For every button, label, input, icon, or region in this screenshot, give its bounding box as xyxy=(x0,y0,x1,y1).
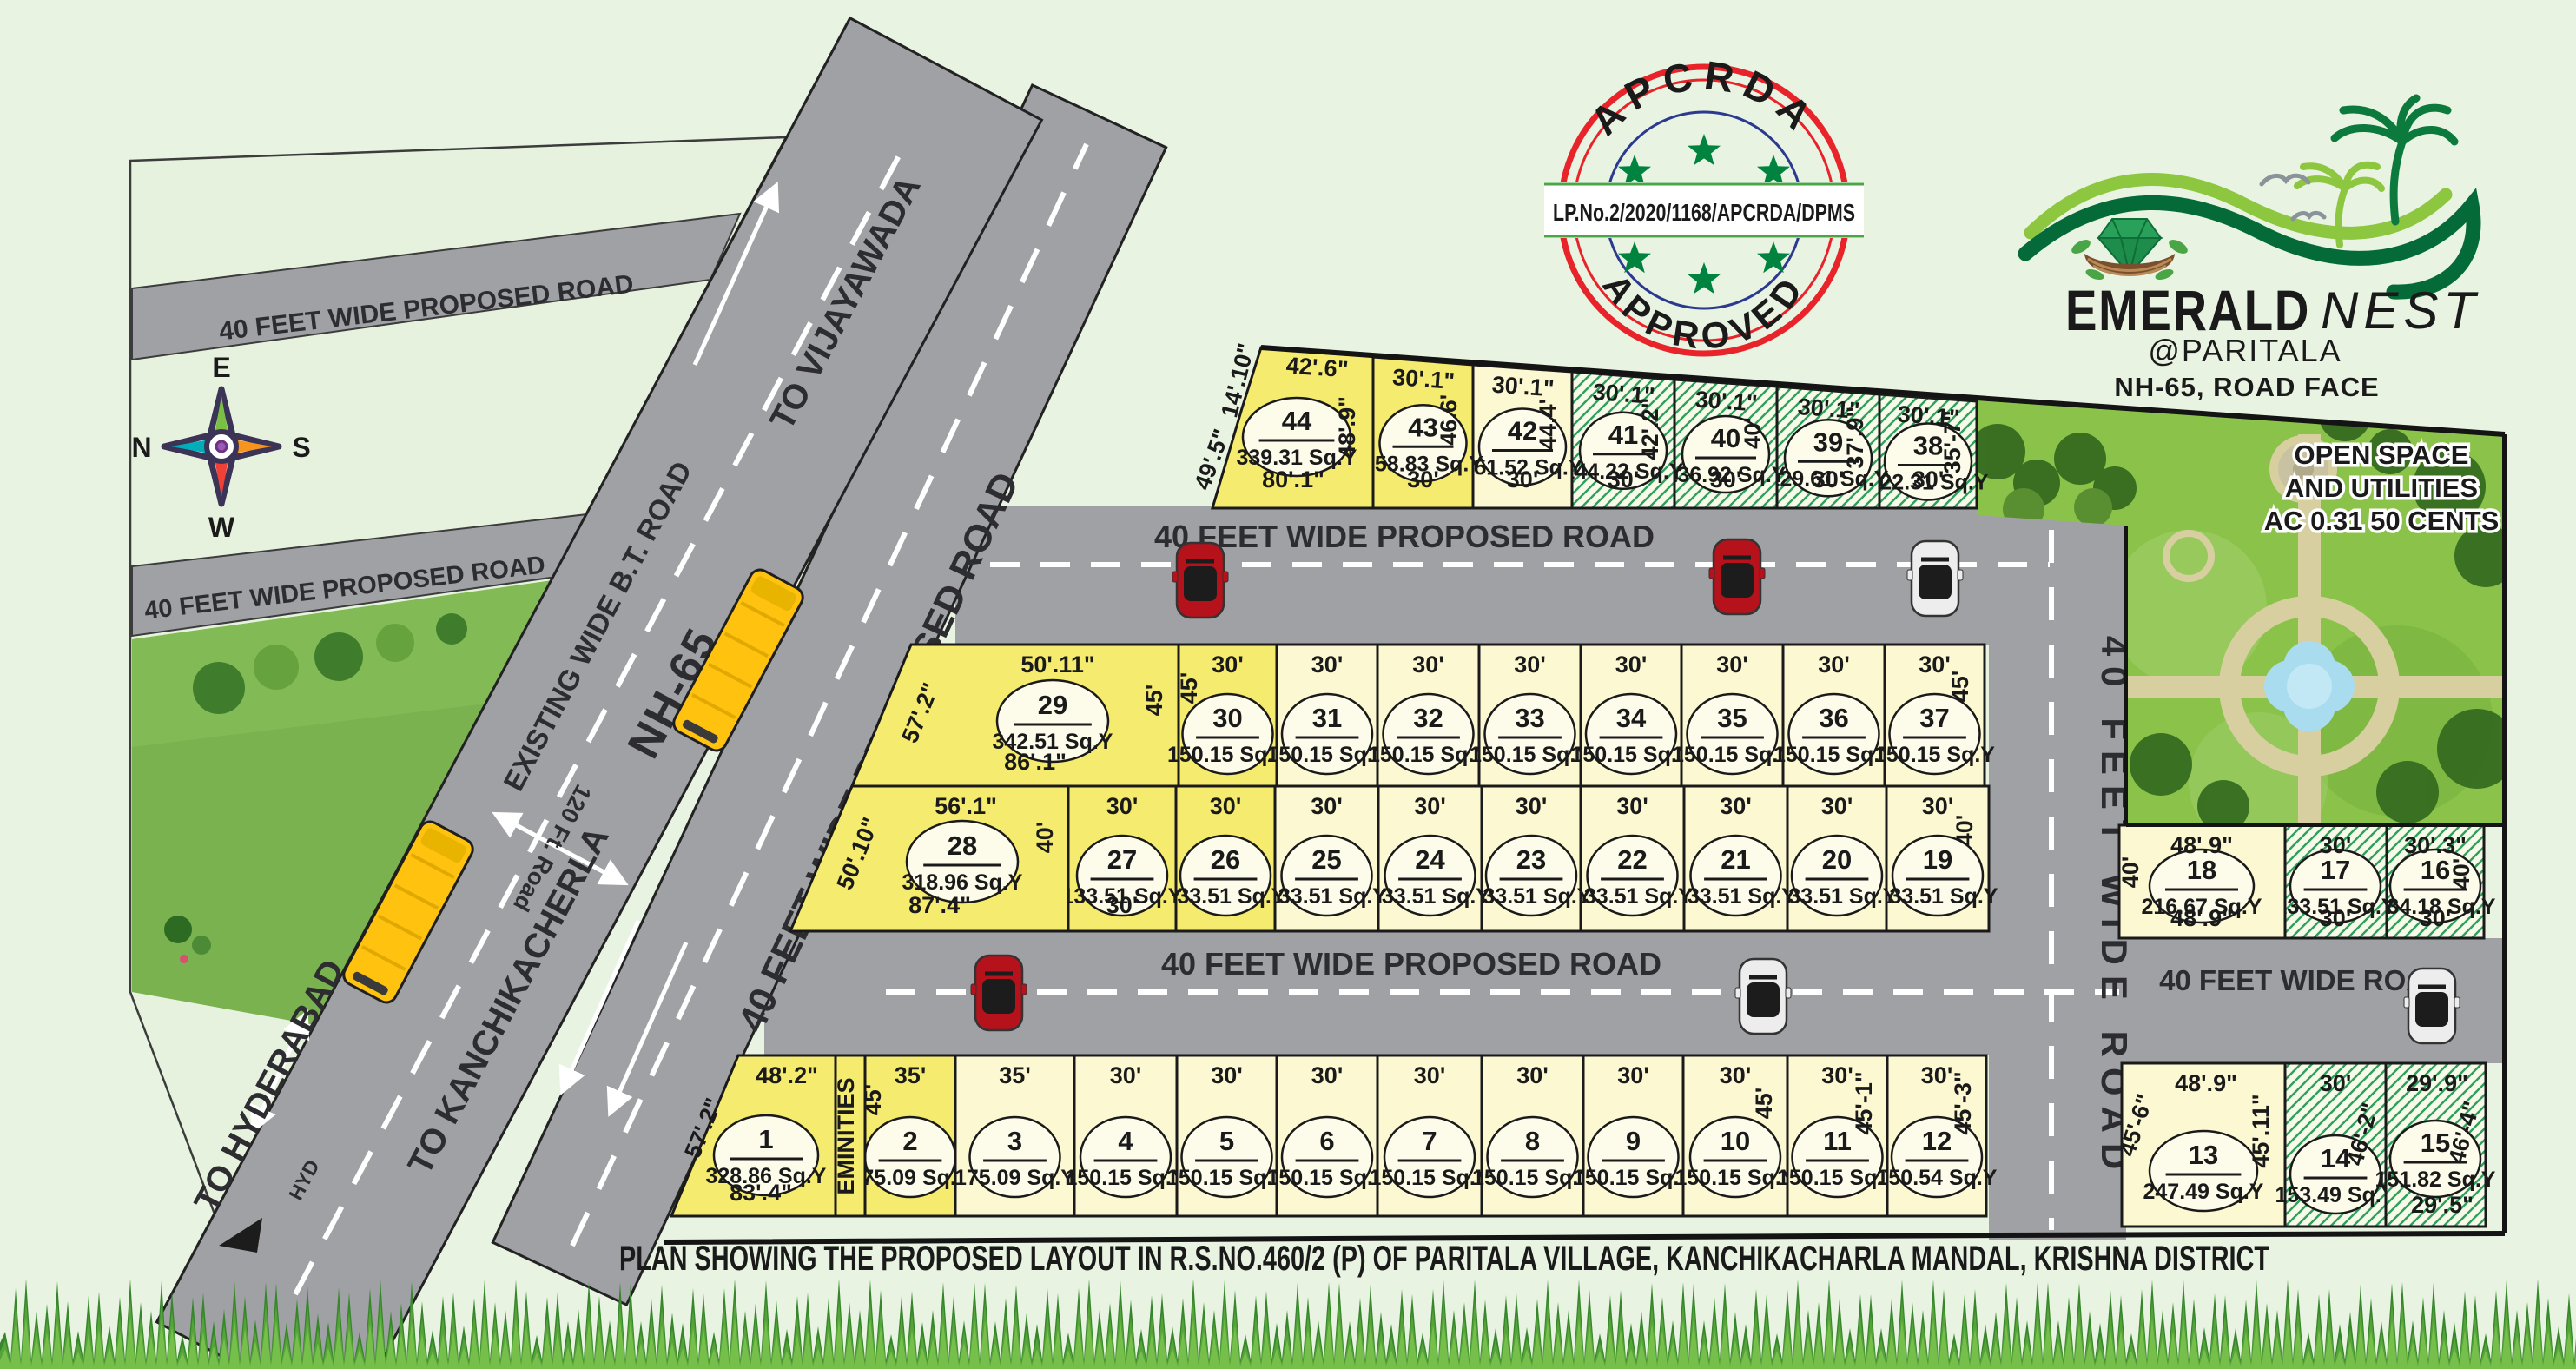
plot-23: 23133.51 Sq.Y30' xyxy=(1471,786,1592,931)
plot-42-dim-top: 30'.1" xyxy=(1491,372,1556,402)
plot-28-dim-top: 56'.1" xyxy=(935,793,997,819)
plot-43-dim-top: 30'.1" xyxy=(1391,364,1456,394)
plot-29-number: 29 xyxy=(1038,690,1067,720)
plot-24-area: 133.51 Sq.Y xyxy=(1370,884,1490,909)
plot-15-dim-top: 29'.9" xyxy=(2406,1070,2468,1096)
car-icon xyxy=(1172,543,1228,618)
plot-34-dim-top: 30' xyxy=(1615,651,1647,678)
plot-28-area: 318.96 Sq.Y xyxy=(902,870,1023,895)
plot-40-dim-top: 30'.1" xyxy=(1694,387,1759,417)
logo-tagline: NH-65, ROAD FACE xyxy=(2114,372,2379,402)
plot-21-area: 133.51 Sq.Y xyxy=(1675,884,1796,909)
plot-17-dim-bottom: 30' xyxy=(2320,905,2351,931)
plot-12-dim-right: 45'-3" xyxy=(1950,1071,1976,1134)
eminities-label: EMINITIES xyxy=(833,1077,859,1194)
logo-location: @PARITALA xyxy=(2148,333,2342,368)
plot-22-number: 22 xyxy=(1617,844,1647,875)
plot-24-number: 24 xyxy=(1415,844,1445,875)
plot-19-dim-top: 30' xyxy=(1922,793,1953,819)
plot-40: 40136.92 Sq.Y30'.1"30'40' xyxy=(1666,380,1787,508)
plot-29-dim-top: 50'.11" xyxy=(1020,651,1094,678)
plot-10-number: 10 xyxy=(1721,1126,1750,1156)
plot-15: 15151.82 Sq.Y29'.9"29'.5"46'-4" xyxy=(2375,1063,2496,1227)
plot-25: 25133.51 Sq.Y30' xyxy=(1266,786,1387,931)
plot-9-number: 9 xyxy=(1626,1126,1641,1156)
plot-37-number: 37 xyxy=(1919,703,1949,733)
plot-28-dim-bottom: 87'.4" xyxy=(908,892,971,918)
plot-31-number: 31 xyxy=(1312,703,1342,733)
road1-label: 40 FEET WIDE PROPOSED ROAD xyxy=(1154,519,1655,554)
plot-7: 7150.15 Sq.Y30' xyxy=(1370,1055,1490,1216)
compass-label-w: W xyxy=(208,512,235,543)
plot-4-number: 4 xyxy=(1118,1126,1133,1156)
plot-16-dim-top: 30'.3" xyxy=(2404,832,2467,858)
plot-43-dim-right: 46.6' xyxy=(1436,394,1462,446)
plot-12-area: 150.54 Sq.Y xyxy=(1877,1166,1998,1190)
plot-27-dim-top: 30' xyxy=(1106,793,1138,819)
tree-icon xyxy=(314,632,363,681)
plot-35-number: 35 xyxy=(1717,703,1747,733)
plot-43-number: 43 xyxy=(1408,412,1437,442)
tree-icon xyxy=(254,645,299,690)
eminities-strip: EMINITIES xyxy=(833,1055,865,1216)
plot-34-number: 34 xyxy=(1616,703,1647,733)
plot-41-dim-right: 42'.2" xyxy=(1637,398,1663,460)
plot-40-dim-right: 40' xyxy=(1740,417,1766,448)
plot-11: 11150.15 Sq.Y30'45'-1" xyxy=(1777,1055,1898,1216)
plot-12-number: 12 xyxy=(1922,1126,1952,1156)
plot-30-number: 30 xyxy=(1212,703,1242,733)
plot-41-number: 41 xyxy=(1608,420,1638,450)
plot-24-dim-top: 30' xyxy=(1414,793,1445,819)
plot-41: 41144.22 Sq.Y30'.1"30'42'.2" xyxy=(1563,372,1684,508)
plot-20-number: 20 xyxy=(1822,844,1852,875)
plot-13: 13247.49 Sq.Y48'.9"45'-6"45'.11" xyxy=(2114,1063,2285,1227)
open-space-line3: AC 0.31 50 CENTS xyxy=(2264,506,2500,536)
compass-dot xyxy=(216,441,227,452)
plot-26: 26133.51 Sq.Y30' xyxy=(1166,786,1286,931)
plot-5: 5150.15 Sq.Y30' xyxy=(1166,1055,1287,1216)
plot-23-number: 23 xyxy=(1516,844,1546,875)
plot-18: 18216.67 Sq.Y48'.9"48'.9"40' xyxy=(2117,825,2285,938)
plot-5-dim-top: 30' xyxy=(1211,1062,1242,1088)
plot-16-dim-right: 40' xyxy=(2448,858,2474,890)
plot-5-number: 5 xyxy=(1219,1126,1234,1156)
road3-label: 40 FEET WIDE ROAD xyxy=(2159,964,2447,996)
plot-19-number: 19 xyxy=(1923,844,1952,875)
plot-29: 29342.51 Sq.Y50'.11"86'.1"57'.2"45' xyxy=(852,645,1179,786)
plot-27: 27133.51 Sq.Y30'30' xyxy=(1062,786,1183,931)
plot-26-number: 26 xyxy=(1211,844,1240,875)
plot-23-dim-top: 30' xyxy=(1516,793,1547,819)
plot-18-dim-left: 40' xyxy=(2117,856,2143,888)
plot-7-number: 7 xyxy=(1422,1126,1437,1156)
plot-8: 8150.15 Sq.Y30' xyxy=(1472,1055,1593,1216)
plot-13-number: 13 xyxy=(2189,1140,2218,1170)
plot-38-dim-right: 35'-7" xyxy=(1939,410,1965,473)
plot-16-dim-bottom: 30' xyxy=(2420,905,2451,931)
plot-26-dim-top: 30' xyxy=(1210,793,1241,819)
plot-41-dim-bottom: 30' xyxy=(1608,466,1639,493)
plot-15-area: 151.82 Sq.Y xyxy=(2375,1167,2496,1192)
plot-17-dim-top: 30' xyxy=(2320,832,2351,858)
plot-43-dim-bottom: 30' xyxy=(1407,466,1438,493)
compass-label-s: S xyxy=(292,432,310,463)
plot-17: 17133.51 Sq.Y30'30' xyxy=(2275,825,2396,938)
plot-43: 43158.83 Sq.Y30'.1"30'46.6' xyxy=(1363,357,1483,508)
plot-29-dim-right: 45' xyxy=(1141,684,1167,716)
plot-16-number: 16 xyxy=(2421,855,2450,885)
plot-2-number: 2 xyxy=(902,1126,917,1156)
car-icon xyxy=(1907,541,1963,616)
plot-18-dim-bottom: 48'.9" xyxy=(2170,905,2233,931)
plot-1-number: 1 xyxy=(758,1124,773,1154)
plot-17-number: 17 xyxy=(2321,855,2350,885)
plot-30-dim-left: 45' xyxy=(1176,672,1202,704)
plot-40-number: 40 xyxy=(1711,423,1740,453)
plot-44-dim-bottom: 80'.1" xyxy=(1262,466,1324,493)
plot-39-dim-bottom: 30' xyxy=(1813,466,1844,493)
plot-10-dim-top: 30' xyxy=(1720,1062,1751,1088)
plot-6-number: 6 xyxy=(1319,1126,1334,1156)
layout-plan: 40 FEET WIDE PROPOSED ROAD 40 FEET WIDE … xyxy=(0,0,2576,1369)
plot-3-area: 175.09 Sq.Y xyxy=(954,1166,1075,1190)
plot-11-dim-right: 45'-1" xyxy=(1851,1071,1877,1134)
plot-42-number: 42 xyxy=(1508,416,1537,446)
plot-19-dim-right: 40' xyxy=(1952,815,1978,846)
plot-37-dim-top: 30' xyxy=(1919,651,1950,678)
compass-label-e: E xyxy=(212,352,230,383)
plot-28-number: 28 xyxy=(948,830,977,861)
plot-32-dim-top: 30' xyxy=(1412,651,1443,678)
plot-21-number: 21 xyxy=(1721,844,1750,875)
plot-44-dim-right: 48'.9" xyxy=(1334,396,1360,459)
plot-28-dim-right: 40' xyxy=(1032,822,1058,853)
plot-22-dim-top: 30' xyxy=(1616,793,1648,819)
plot-2-area: 175.09 Sq.Y xyxy=(850,1166,971,1190)
plot-37-area: 150.15 Sq.Y xyxy=(1874,743,1995,767)
open-space-line1: OPEN SPACE xyxy=(2295,440,2469,470)
plot-38: 38122.31 Sq.Y30'.1"30'35'-7" xyxy=(1868,394,1989,508)
plot-10-dim-right: 45' xyxy=(1751,1088,1777,1119)
plot-9-dim-top: 30' xyxy=(1617,1062,1648,1088)
plan-title: PLAN SHOWING THE PROPOSED LAYOUT IN R.S.… xyxy=(619,1240,2269,1278)
plot-9: 9150.15 Sq.Y30' xyxy=(1573,1055,1694,1216)
plot-18-number: 18 xyxy=(2187,855,2216,885)
plot-27-dim-bottom: 30' xyxy=(1106,892,1138,918)
plot-13-dim-top: 48'.9" xyxy=(2175,1070,2237,1096)
plot-25-number: 25 xyxy=(1311,844,1341,875)
car-icon xyxy=(1709,539,1765,614)
plot-21: 21133.51 Sq.Y30' xyxy=(1675,786,1796,931)
open-space-line2: AND UTILITIES xyxy=(2285,473,2478,503)
plot-37: 37150.15 Sq.Y30'45' xyxy=(1874,645,1995,786)
plot-2-dim-top: 35' xyxy=(895,1062,926,1088)
road2-label: 40 FEET WIDE PROPOSED ROAD xyxy=(1161,946,1661,982)
plot-10: 10150.15 Sq.Y30'45' xyxy=(1675,1055,1796,1216)
plot-44-number: 44 xyxy=(1282,406,1312,436)
plot-29-dim-bottom: 86'.1" xyxy=(1004,749,1067,775)
open-space-text: OPEN SPACE AND UTILITIES AC 0.31 50 CENT… xyxy=(2264,440,2500,536)
plot-39-number: 39 xyxy=(1813,427,1843,457)
plot-42-dim-right: 44.4' xyxy=(1535,399,1561,450)
tree-icon xyxy=(436,613,467,645)
flower-icon xyxy=(180,955,188,963)
plot-11-number: 11 xyxy=(1823,1126,1852,1156)
plot-25-dim-top: 30' xyxy=(1311,793,1342,819)
plot-20-dim-top: 30' xyxy=(1821,793,1853,819)
plot-14: 14153.49 Sq.Y30'46'-2" xyxy=(2275,1063,2396,1227)
plot-24: 24133.51 Sq.Y30' xyxy=(1370,786,1490,931)
bush-icon xyxy=(164,916,192,943)
plot-44-dim-top: 42'.6" xyxy=(1285,353,1350,383)
plot-8-dim-top: 30' xyxy=(1516,1062,1548,1088)
compass-label-n: N xyxy=(131,432,151,463)
plot-12-dim-top: 30' xyxy=(1921,1062,1952,1088)
plot-40-dim-bottom: 30' xyxy=(1710,466,1741,493)
car-icon xyxy=(971,956,1027,1030)
plot-3-number: 3 xyxy=(1007,1126,1022,1156)
plot-42: 42151.52 Sq.Y30'.1"30'44.4' xyxy=(1463,365,1583,508)
plot-19: 19133.51 Sq.Y30'40' xyxy=(1878,786,1998,931)
plot-13-area: 247.49 Sq.Y xyxy=(2143,1180,2264,1204)
plot-22: 22133.51 Sq.Y30' xyxy=(1572,786,1693,931)
plot-39-dim-right: 37'.9" xyxy=(1842,407,1868,469)
plot-15-dim-bottom: 29'.5" xyxy=(2411,1192,2474,1218)
logo-name2: NEST xyxy=(2321,281,2480,340)
plot-36-dim-top: 30' xyxy=(1818,651,1849,678)
plot-8-number: 8 xyxy=(1525,1126,1540,1156)
car-icon xyxy=(1735,959,1791,1034)
plot-11-dim-top: 30' xyxy=(1821,1062,1853,1088)
plot-18-dim-top: 48'.9" xyxy=(2170,832,2233,858)
car-icon xyxy=(2404,969,2460,1043)
plot-27-number: 27 xyxy=(1107,844,1137,875)
plot-2: 2175.09 Sq.Y35'45' xyxy=(850,1055,971,1216)
plot-32-number: 32 xyxy=(1413,703,1443,733)
tree-icon xyxy=(376,624,414,662)
plot-7-dim-top: 30' xyxy=(1414,1062,1445,1088)
plot-20: 20133.51 Sq.Y30' xyxy=(1777,786,1898,931)
plot-1-dim-top: 48'.2" xyxy=(756,1062,818,1088)
plot-3: 3175.09 Sq.Y35' xyxy=(954,1055,1075,1216)
plot-6: 6150.15 Sq.Y30' xyxy=(1267,1055,1388,1216)
plot-33-dim-top: 30' xyxy=(1514,651,1545,678)
plot-36-number: 36 xyxy=(1819,703,1848,733)
plot-37-dim-right: 45' xyxy=(1947,671,1973,702)
bush-icon xyxy=(192,936,211,955)
plot-42-dim-bottom: 30' xyxy=(1507,466,1538,493)
plot-14-dim-top: 30' xyxy=(2320,1070,2351,1096)
plot-16: 16134.18 Sq.Y30'.3"30'40' xyxy=(2375,825,2496,938)
plot-30-dim-top: 30' xyxy=(1212,651,1243,678)
plot-3-dim-top: 35' xyxy=(999,1062,1030,1088)
plot-31-dim-top: 30' xyxy=(1311,651,1343,678)
plot-33-number: 33 xyxy=(1515,703,1544,733)
plot-39: 39129.61 Sq.Y30'.1"30'37'.9" xyxy=(1768,387,1889,508)
stamp-lp-number: LP.No.2/2020/1168/APCRDA/DPMS xyxy=(1553,199,1855,226)
plot-1-dim-bottom: 83'.4" xyxy=(730,1180,792,1206)
plot-12: 12150.54 Sq.Y30'45'-3" xyxy=(1877,1055,1998,1216)
plot-13-dim-right: 45'.11" xyxy=(2248,1094,2274,1167)
tree-icon xyxy=(193,662,245,714)
plot-26-area: 133.51 Sq.Y xyxy=(1166,884,1286,909)
plot-4: 4150.15 Sq.Y30' xyxy=(1066,1055,1186,1216)
plot-4-dim-top: 30' xyxy=(1110,1062,1141,1088)
plot-35-dim-top: 30' xyxy=(1716,651,1747,678)
plot-6-dim-top: 30' xyxy=(1311,1062,1343,1088)
plot-21-dim-top: 30' xyxy=(1720,793,1751,819)
